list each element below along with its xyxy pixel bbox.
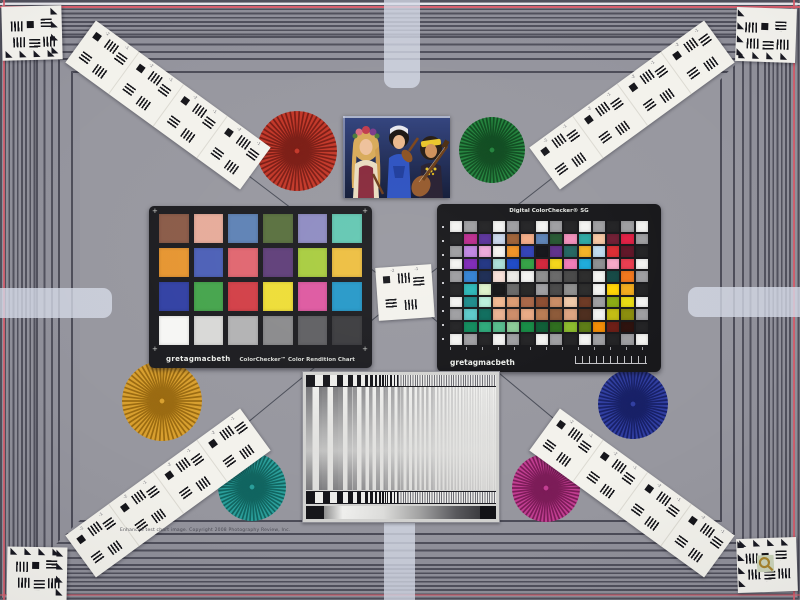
registration-triangle-icon: ◣ <box>19 49 26 59</box>
color-patch <box>593 234 605 245</box>
color-patch <box>507 297 519 308</box>
bar-group <box>78 51 93 66</box>
color-patch <box>607 271 619 282</box>
color-patch <box>621 334 633 345</box>
color-patch <box>550 234 562 245</box>
sweep-slice <box>464 387 480 490</box>
color-patch <box>593 322 605 333</box>
resolution-mark: -2 <box>630 74 636 80</box>
color-patch <box>636 271 648 282</box>
bar-group <box>747 38 760 48</box>
color-patch <box>579 297 591 308</box>
color-patch <box>159 282 189 311</box>
color-patch <box>636 246 648 257</box>
frequency-tail <box>398 492 496 503</box>
color-patch <box>194 248 224 277</box>
frequency-bar-top <box>306 375 496 387</box>
color-patch <box>550 334 562 345</box>
registration-triangle-icon: ◣ <box>52 547 59 557</box>
bar-group <box>542 439 557 454</box>
color-patch <box>493 234 505 245</box>
color-patch <box>607 322 619 333</box>
resolution-mark: -1 <box>588 433 594 439</box>
color-patch <box>536 246 548 257</box>
plus-registration-mark: + <box>152 208 158 215</box>
color-patch <box>479 309 491 320</box>
bar-group <box>201 116 216 131</box>
color-patch <box>464 284 476 295</box>
bar-group <box>234 421 249 436</box>
color-patch <box>521 246 533 257</box>
color-patch <box>493 271 505 282</box>
resolution-mark: -1 <box>720 529 726 535</box>
black-square <box>180 96 190 106</box>
black-square <box>540 146 550 156</box>
bar-group <box>610 97 625 112</box>
frequency-block <box>323 375 330 386</box>
black-square <box>208 439 218 449</box>
colorchecker-classic: + + + + gretagmacbethColorChecker™ Color… <box>149 206 372 368</box>
corner-resolution-card: ◣◣◣◣◣◣◣◣ <box>736 537 798 593</box>
registration-triangle-icon: ◣ <box>50 6 57 16</box>
color-patch <box>621 322 633 333</box>
color-patch <box>536 334 548 345</box>
color-patch <box>228 214 258 243</box>
resolution-mark: -1 <box>124 45 130 51</box>
color-patch <box>536 322 548 333</box>
color-patch <box>298 282 328 311</box>
sweep-slice <box>322 387 338 490</box>
color-patch <box>493 309 505 320</box>
bar-group <box>178 486 193 501</box>
bar-group <box>398 273 412 284</box>
color-patch <box>636 284 648 295</box>
loupe-icon-svg <box>757 555 775 573</box>
color-patch <box>621 309 633 320</box>
resolution-mark: -1 <box>98 512 104 518</box>
registration-triangle-icon: ◣ <box>56 574 63 584</box>
sg-title-text: Digital ColorChecker® SG <box>437 208 661 214</box>
color-patch <box>450 246 462 257</box>
color-patch <box>536 271 548 282</box>
color-patch <box>332 248 362 277</box>
bar-group <box>165 115 180 130</box>
resolution-mark: -2 <box>79 526 85 532</box>
sweep-slice <box>433 387 449 490</box>
bar-group <box>405 299 419 310</box>
registration-triangle-icon: ◣ <box>738 8 745 18</box>
color-patch <box>507 284 519 295</box>
registration-triangle-icon: ◣ <box>738 553 745 563</box>
bar-group <box>686 67 701 82</box>
bar-group <box>107 539 123 555</box>
bar-group <box>654 65 669 80</box>
sweep-slice <box>338 387 354 490</box>
color-patch <box>464 297 476 308</box>
color-patch <box>450 259 462 270</box>
color-patch <box>521 259 533 270</box>
bar-group <box>775 21 786 31</box>
bar-group <box>745 22 758 32</box>
center-resolution-card: -2-1 <box>375 264 435 321</box>
chart-title-text: ColorChecker™ Color Rendition Chart <box>240 357 355 363</box>
color-patch <box>593 259 605 270</box>
resolution-mark: -2 <box>700 515 706 521</box>
bar-group <box>698 33 713 48</box>
bar-group <box>571 151 587 167</box>
color-patch <box>579 271 591 282</box>
sg-ruler-scale <box>575 356 647 364</box>
color-patch <box>263 282 293 311</box>
bar-group <box>642 98 657 113</box>
resolution-mark: -2 <box>236 127 242 133</box>
color-patch <box>464 221 476 232</box>
registration-triangle-icon: ◣ <box>737 34 744 44</box>
color-patch <box>450 309 462 320</box>
black-square <box>164 471 174 481</box>
color-patch <box>564 297 576 308</box>
resolution-mark: -2 <box>569 419 575 425</box>
bar-group <box>18 578 31 588</box>
frequency-tail <box>398 375 496 386</box>
color-patch <box>579 221 591 232</box>
resolution-mark: -1 <box>676 497 682 503</box>
color-patch <box>464 234 476 245</box>
black-square <box>27 21 34 28</box>
color-patch <box>479 271 491 282</box>
color-patch <box>636 309 648 320</box>
bar-group <box>190 453 205 468</box>
resolution-mark: -2 <box>192 95 198 101</box>
resolution-mark: -1 <box>694 28 700 34</box>
bar-group <box>34 580 45 590</box>
sg-column-ticks <box>450 347 648 350</box>
bar-group <box>644 516 660 532</box>
color-patch <box>536 284 548 295</box>
color-patch <box>507 221 519 232</box>
color-patch <box>332 214 362 243</box>
color-patch <box>194 316 224 345</box>
color-patch <box>636 221 648 232</box>
color-patch <box>464 322 476 333</box>
resolution-mark: -1 <box>562 124 568 130</box>
color-patch <box>636 334 648 345</box>
color-patch <box>263 248 293 277</box>
color-patch <box>493 322 505 333</box>
black-square <box>628 83 638 93</box>
brand-text: gretagmacbeth <box>166 355 230 363</box>
bar-group <box>222 455 237 470</box>
bar-group <box>778 568 791 578</box>
black-square <box>383 276 390 283</box>
bar-group <box>385 299 397 310</box>
color-patch <box>550 259 562 270</box>
color-patch <box>332 282 362 311</box>
bar-group <box>180 128 196 144</box>
corner-resolution-card: ◣◣◣◣◣◣◣◣ <box>7 546 68 600</box>
plus-registration-mark: + <box>362 346 368 353</box>
color-patch <box>564 334 576 345</box>
grayscale-black-end <box>306 506 324 519</box>
registration-triangle-icon: ◣ <box>24 547 31 557</box>
resolution-mark: -1 <box>212 109 218 115</box>
registration-triangle-icon: ◣ <box>781 537 788 547</box>
color-patch <box>521 297 533 308</box>
registration-triangle-icon: ◣ <box>51 19 58 29</box>
navy-starburst <box>598 369 668 439</box>
resolution-mark: -2 <box>148 63 154 69</box>
bar-group <box>136 96 152 112</box>
color-patch <box>263 316 293 345</box>
sweep-slice <box>369 387 385 490</box>
color-patch <box>479 322 491 333</box>
green-starburst-svg <box>459 117 525 183</box>
bar-group <box>629 503 644 518</box>
black-square <box>136 64 146 74</box>
black-square <box>92 32 102 42</box>
color-patch <box>479 246 491 257</box>
resolution-mark: -1 <box>650 60 656 66</box>
bar-group <box>146 485 161 500</box>
navy-starburst-svg <box>598 369 668 439</box>
black-square <box>672 51 682 61</box>
color-patch <box>564 309 576 320</box>
color-patch <box>479 259 491 270</box>
sweep-slice <box>480 387 496 490</box>
resolution-mark: -2 <box>612 451 618 457</box>
bar-group <box>239 444 255 460</box>
color-patch <box>464 334 476 345</box>
corner-resolution-card: ◣◣◣◣◣◣◣◣ <box>1 5 62 61</box>
sweep-slice <box>401 387 417 490</box>
color-patch <box>607 309 619 320</box>
bar-group <box>11 21 24 31</box>
bar-group <box>113 52 128 67</box>
frequency-block <box>306 492 315 503</box>
resolution-mark: -2 <box>105 31 111 37</box>
color-patch <box>479 221 491 232</box>
color-patch <box>521 309 533 320</box>
black-square <box>224 128 234 138</box>
bar-group <box>122 83 137 98</box>
frequency-sweep-chart <box>302 371 500 523</box>
colorchecker-sg: Digital ColorChecker® SG gretagmacbeth <box>437 204 661 372</box>
color-patch <box>621 284 633 295</box>
resolution-mark: -1 <box>606 92 612 98</box>
color-patch <box>159 316 189 345</box>
registration-triangle-icon: ◣ <box>38 547 45 557</box>
color-patch <box>536 221 548 232</box>
bar-group <box>599 130 614 145</box>
bar-group <box>13 37 26 47</box>
bar-group <box>659 88 675 104</box>
sweep-slice <box>448 387 464 490</box>
color-patch <box>564 246 576 257</box>
resolution-mark: -1 <box>168 77 174 83</box>
amber-starburst-svg <box>122 361 202 441</box>
resolution-mark: -1 <box>632 465 638 471</box>
frequency-block <box>315 375 323 386</box>
bar-group <box>245 148 260 163</box>
color-patch <box>579 309 591 320</box>
color-patch <box>507 309 519 320</box>
color-patch <box>593 271 605 282</box>
color-patch <box>550 271 562 282</box>
sweep-slice <box>306 387 322 490</box>
bar-group <box>764 571 775 581</box>
color-patch <box>607 334 619 345</box>
grayscale-gradient <box>324 506 480 519</box>
amber-starburst <box>122 361 202 441</box>
resolution-mark: -1 <box>256 141 262 147</box>
color-patch <box>550 284 562 295</box>
resolution-mark: -2 <box>543 138 549 144</box>
color-patch <box>536 297 548 308</box>
registration-triangle-icon: ◣ <box>738 566 745 576</box>
colorchecker-classic-label: gretagmacbethColorChecker™ Color Renditi… <box>149 346 372 365</box>
color-patch <box>593 246 605 257</box>
bar-group <box>556 452 572 468</box>
color-patch <box>493 221 505 232</box>
color-patch <box>493 297 505 308</box>
registration-triangle-icon: ◣ <box>738 579 745 589</box>
bar-group <box>16 562 29 572</box>
musicians-photo <box>343 116 450 198</box>
registration-triangle-icon: ◣ <box>56 561 63 571</box>
black-square <box>76 534 86 544</box>
color-patch <box>564 259 576 270</box>
color-patch <box>564 284 576 295</box>
color-patch <box>159 248 189 277</box>
color-patch <box>607 259 619 270</box>
black-square <box>32 562 39 569</box>
color-patch <box>228 248 258 277</box>
color-patch <box>636 234 648 245</box>
green-starburst <box>459 117 525 183</box>
color-patch <box>228 282 258 311</box>
color-patch <box>194 214 224 243</box>
registration-triangle-icon: ◣ <box>51 32 58 42</box>
resolution-mark: -1 <box>186 448 192 454</box>
black-square <box>688 516 698 526</box>
bar-group <box>577 440 592 455</box>
color-patch <box>521 234 533 245</box>
color-patch <box>593 309 605 320</box>
color-patch <box>564 234 576 245</box>
sweep-slice <box>385 387 401 490</box>
color-patch <box>636 259 648 270</box>
color-patch <box>450 334 462 345</box>
black-square <box>120 503 130 513</box>
color-patch <box>507 322 519 333</box>
color-patch <box>464 309 476 320</box>
color-patch <box>493 284 505 295</box>
colorchecker-classic-grid <box>159 214 362 345</box>
bar-group <box>621 472 636 487</box>
color-patch <box>593 334 605 345</box>
plus-registration-mark: + <box>152 346 158 353</box>
color-patch <box>298 214 328 243</box>
color-patch <box>507 259 519 270</box>
black-square <box>600 452 610 462</box>
color-patch <box>450 234 462 245</box>
color-patch <box>263 214 293 243</box>
brand-text: gretagmacbeth <box>450 358 515 367</box>
red-starburst-svg <box>257 111 337 191</box>
color-patch <box>550 221 562 232</box>
red-starburst <box>257 111 337 191</box>
registration-triangle-icon: ◣ <box>739 539 746 549</box>
color-patch <box>579 334 591 345</box>
frequency-block <box>323 492 330 503</box>
color-patch <box>607 234 619 245</box>
registration-triangle-icon: ◣ <box>780 52 787 62</box>
bar-group <box>762 41 773 51</box>
color-patch <box>450 322 462 333</box>
color-patch <box>493 246 505 257</box>
bar-group <box>688 548 704 564</box>
color-patch <box>536 309 548 320</box>
color-patch <box>607 221 619 232</box>
registration-triangle-icon: ◣ <box>752 51 759 61</box>
frequency-block <box>306 375 315 386</box>
sg-row-markers <box>442 226 444 342</box>
color-patch <box>636 322 648 333</box>
bar-group <box>91 550 106 565</box>
color-patch <box>579 259 591 270</box>
loupe-icon <box>757 555 775 573</box>
color-patch <box>593 297 605 308</box>
color-patch <box>332 316 362 345</box>
color-patch <box>507 234 519 245</box>
color-patch <box>564 221 576 232</box>
registration-triangle-icon: ◣ <box>5 50 12 60</box>
bar-group <box>555 162 570 177</box>
resolution-mark: -2 <box>123 494 129 500</box>
color-patch <box>593 221 605 232</box>
bar-group <box>665 504 680 519</box>
corner-resolution-card: ◣◣◣◣◣◣◣◣ <box>735 7 797 63</box>
color-patch <box>479 234 491 245</box>
color-patch <box>536 234 548 245</box>
resolution-mark: -1 <box>230 416 236 422</box>
resolution-mark: -2 <box>656 483 662 489</box>
musicians-photo-image <box>343 116 450 198</box>
bar-group <box>703 56 719 72</box>
color-patch <box>607 284 619 295</box>
bar-group <box>92 64 108 80</box>
color-patch <box>550 309 562 320</box>
color-patch <box>521 221 533 232</box>
color-patch <box>621 297 633 308</box>
color-patch <box>621 234 633 245</box>
color-patch <box>550 297 562 308</box>
test-chart-scene: -2-1 + + + + gretagmacbethColorChecker™ … <box>0 0 800 600</box>
bar-group <box>195 476 211 492</box>
color-patch <box>621 221 633 232</box>
sweep-slice <box>353 387 369 490</box>
color-patch <box>621 246 633 257</box>
color-patch <box>579 234 591 245</box>
color-patch <box>450 221 462 232</box>
registration-triangle-icon: ◣ <box>737 21 744 31</box>
plus-registration-mark: + <box>362 208 368 215</box>
color-patch <box>636 297 648 308</box>
color-patch <box>159 214 189 243</box>
color-patch <box>593 284 605 295</box>
color-patch <box>621 259 633 270</box>
color-patch <box>579 246 591 257</box>
